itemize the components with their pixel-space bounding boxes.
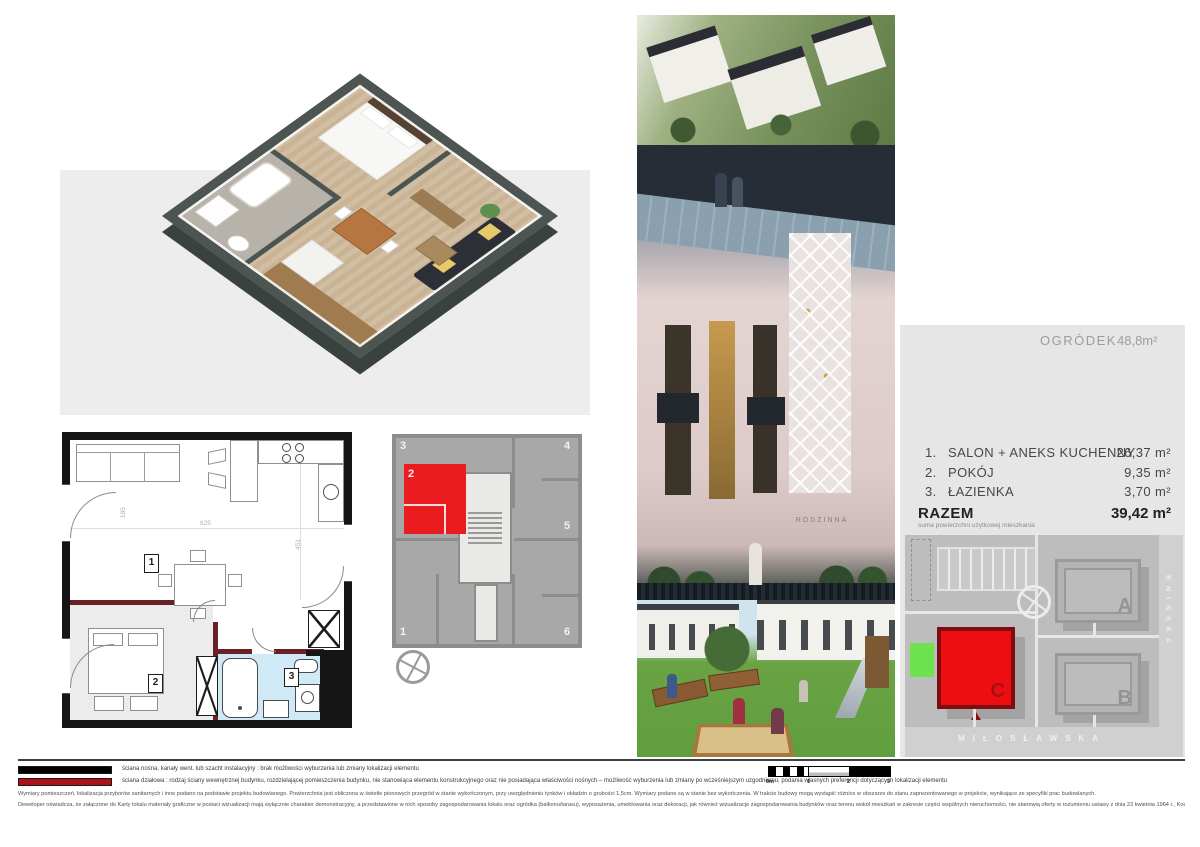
decor-quilt-panel bbox=[789, 233, 851, 493]
scale-label-2: 2 bbox=[847, 779, 850, 785]
wall-bottom bbox=[62, 720, 352, 728]
dim-451: 451 bbox=[295, 539, 302, 550]
scale-label-1: 1 bbox=[807, 779, 810, 785]
scale-label-0: 0m bbox=[766, 779, 774, 785]
dining-table bbox=[174, 564, 226, 606]
scale-bar bbox=[768, 766, 891, 777]
legend-swatch-load-bearing bbox=[18, 766, 112, 774]
disclaimer-paragraph-2: Deweloper oświadcza, że załączone do Kar… bbox=[18, 802, 1185, 808]
legend-text-partition: ściana działowa : rodzaj ściany wewnętrz… bbox=[122, 778, 947, 784]
garden-area: 48,8m² bbox=[1117, 333, 1157, 348]
total-area: 39,42 m² bbox=[1111, 505, 1171, 522]
kitchen-peninsula bbox=[230, 440, 258, 502]
dim-line-v bbox=[300, 440, 301, 600]
washing-machine-drum bbox=[301, 691, 314, 704]
window-right bbox=[344, 524, 352, 582]
facade-balcony bbox=[747, 397, 785, 425]
stove-burner bbox=[295, 443, 304, 452]
building-a: A bbox=[1055, 559, 1141, 623]
sofa bbox=[76, 444, 180, 482]
apartment-card-page: 825 451 185 355 287 bbox=[0, 0, 1200, 847]
disclaimer-paragraph-1: Wymiary pomieszczeń, lokalizacja przybor… bbox=[18, 791, 1185, 797]
facade-render-photo: RODZINNA bbox=[637, 145, 895, 600]
kitchen-sink bbox=[323, 484, 339, 500]
stove-burner bbox=[282, 454, 291, 463]
room-number: 3. bbox=[925, 484, 937, 499]
courtyard-render-photo bbox=[637, 600, 895, 757]
building-b: B bbox=[1055, 653, 1141, 715]
room-row: 3. ŁAZIENKA 3,70 m² bbox=[925, 484, 1171, 500]
street-bottom-name: MIŁOSŁAWSKA bbox=[905, 734, 1159, 743]
building-c-highlighted: C bbox=[937, 627, 1015, 709]
room-label-1: 1 bbox=[144, 554, 159, 573]
facade-window-lit bbox=[709, 321, 735, 499]
facade-brand-text: RODZINNA bbox=[787, 517, 857, 524]
parking-row bbox=[937, 547, 1037, 591]
garden-label: OGRÓDEK bbox=[1040, 333, 1117, 348]
child-figure bbox=[733, 698, 745, 724]
keyplan-stairs bbox=[468, 510, 502, 544]
outbuilding-dashed bbox=[911, 539, 931, 601]
entrance-door-swing bbox=[302, 566, 344, 608]
3d-plant bbox=[476, 201, 504, 221]
dining-chair bbox=[158, 574, 172, 587]
dim-825: 825 bbox=[200, 520, 211, 527]
street-right bbox=[1159, 535, 1183, 757]
legend-text-load-bearing: ściana nośna, kanały went. lub szacht in… bbox=[122, 766, 419, 772]
partition-bath-top-a bbox=[218, 649, 252, 654]
room-area: 3,70 m² bbox=[1124, 484, 1171, 499]
keyplan-unit-number-2: 2 bbox=[408, 468, 414, 480]
wardrobe bbox=[196, 656, 218, 716]
keyplan-unit-number-6: 6 bbox=[564, 626, 570, 638]
balcony-door-window-2 bbox=[62, 638, 70, 694]
keyplan-entrance bbox=[474, 584, 498, 642]
street-right-name: BNIŃSKA bbox=[1164, 575, 1171, 649]
keyplan-staircase-core bbox=[458, 472, 512, 584]
bed-bench bbox=[130, 696, 158, 711]
bed-bench bbox=[94, 696, 124, 711]
site-plan: MIŁOSŁAWSKA BNIŃSKA A B C bbox=[905, 535, 1183, 757]
3d-floor bbox=[162, 73, 558, 358]
room-name: POKÓJ bbox=[948, 465, 994, 480]
bathtub-drain bbox=[238, 706, 242, 710]
bathroom-door-swing bbox=[252, 628, 276, 652]
scale-bar-segment-white bbox=[809, 767, 849, 776]
walking-person bbox=[749, 543, 762, 585]
3d-tv-unit bbox=[409, 189, 466, 230]
fence bbox=[637, 583, 895, 600]
aerial-render-photo bbox=[637, 15, 895, 145]
bed-pillow bbox=[128, 633, 158, 646]
garden-plot-green bbox=[910, 643, 934, 677]
dining-chair bbox=[228, 574, 242, 587]
floor-key-plan: 3 4 2 5 1 6 bbox=[392, 434, 582, 648]
wall-shaft-bottom-right bbox=[320, 654, 344, 720]
stove-burner bbox=[282, 443, 291, 452]
balcony-person bbox=[732, 177, 743, 207]
room-area: 9,35 m² bbox=[1124, 465, 1171, 480]
bar-stool bbox=[208, 472, 226, 489]
room-name: SALON + ANEKS KUCHENNY bbox=[948, 445, 1136, 460]
child-figure bbox=[771, 708, 784, 734]
adult-figure bbox=[799, 680, 808, 702]
balcony-person bbox=[715, 173, 727, 207]
total-label: RAZEM bbox=[918, 505, 974, 522]
sofa-seam bbox=[144, 452, 145, 482]
scale-bar-segment-checker bbox=[769, 767, 809, 776]
compass-icon bbox=[1017, 585, 1051, 619]
room-number: 1. bbox=[925, 445, 937, 460]
room-label-3: 3 bbox=[284, 668, 299, 687]
wardrobe bbox=[308, 610, 340, 648]
keyplan-unit-number-1: 1 bbox=[400, 626, 406, 638]
keyplan-unit-number-4: 4 bbox=[564, 440, 570, 452]
slide-tower bbox=[865, 636, 889, 688]
facade-balcony bbox=[657, 393, 699, 423]
building-a-letter: A bbox=[1118, 595, 1132, 618]
building-b-letter: B bbox=[1118, 687, 1132, 710]
room-row: 1. SALON + ANEKS KUCHENNY 26,37 m² bbox=[925, 445, 1171, 461]
room-area: 26,37 m² bbox=[1116, 445, 1171, 460]
total-note: suma powierzchni użytkowej mieszkania bbox=[918, 522, 1035, 529]
balcony-door-window-1 bbox=[62, 484, 70, 542]
bathroom-sink bbox=[263, 700, 289, 718]
dim-185: 185 bbox=[120, 507, 127, 518]
building-c-letter: C bbox=[991, 680, 1005, 703]
room-name: ŁAZIENKA bbox=[948, 484, 1014, 499]
legend-swatch-partition bbox=[18, 778, 112, 786]
stove-burner bbox=[295, 454, 304, 463]
room-number: 2. bbox=[925, 465, 937, 480]
adult-figure bbox=[667, 674, 677, 698]
room-label-2: 2 bbox=[148, 674, 163, 693]
bench bbox=[708, 669, 760, 692]
scale-label-3: 3 bbox=[887, 779, 890, 785]
wall-top bbox=[62, 432, 352, 440]
info-panel: OGRÓDEK 48,8m² 1. SALON + ANEKS KUCHENNY… bbox=[900, 325, 1185, 757]
room-row: 2. POKÓJ 9,35 m² bbox=[925, 465, 1171, 481]
scale-bar-segment-black bbox=[850, 767, 890, 776]
bench bbox=[652, 679, 709, 708]
keyplan-unit-number-3: 3 bbox=[400, 440, 406, 452]
2d-floorplan: 825 451 185 355 287 bbox=[62, 432, 352, 728]
footer-divider bbox=[18, 759, 1185, 761]
north-arrow-icon bbox=[396, 650, 430, 684]
balcony-door-swing bbox=[70, 492, 116, 538]
sofa-back-line bbox=[76, 452, 180, 453]
sofa-seam bbox=[110, 452, 111, 482]
bar-stool bbox=[208, 448, 226, 465]
isometric-3d-floorplan bbox=[155, 18, 565, 398]
dining-chair bbox=[190, 550, 206, 562]
courtyard-tree bbox=[695, 626, 759, 672]
keyplan-unit-number-5: 5 bbox=[564, 520, 570, 532]
wall-entry-niche bbox=[306, 650, 344, 656]
